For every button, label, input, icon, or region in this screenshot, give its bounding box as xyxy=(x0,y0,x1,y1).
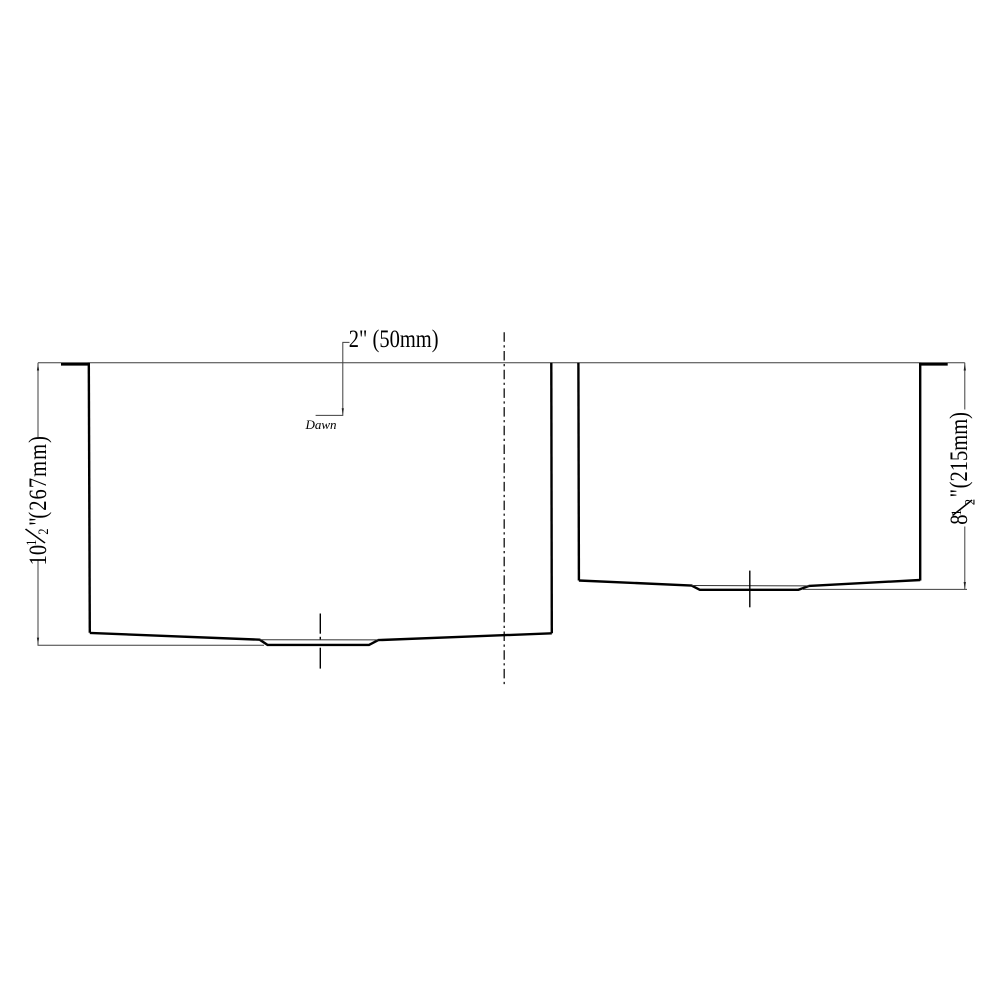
svg-text:(215mm): (215mm) xyxy=(945,412,972,488)
svg-text:2: 2 xyxy=(35,528,51,534)
svg-text:Dawn: Dawn xyxy=(305,417,337,432)
svg-text:10: 10 xyxy=(24,545,51,565)
svg-text:1: 1 xyxy=(23,539,39,545)
svg-text:(267mm): (267mm) xyxy=(24,435,51,519)
svg-text:2: 2 xyxy=(961,499,977,505)
svg-text:2" (50mm): 2" (50mm) xyxy=(349,325,439,352)
svg-text:": " xyxy=(945,489,972,497)
